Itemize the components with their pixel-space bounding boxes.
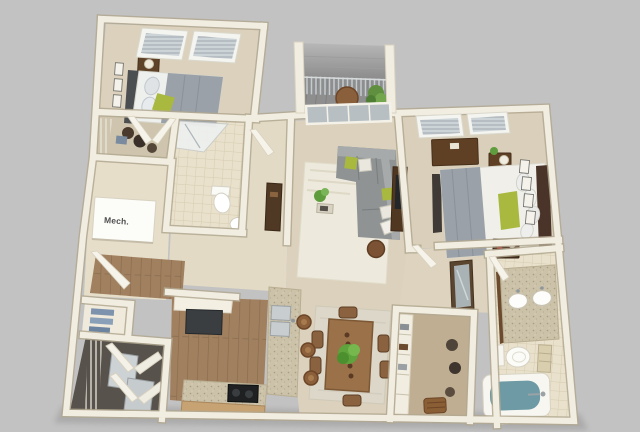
console-item: [270, 192, 278, 197]
basket: [424, 397, 447, 413]
hall-console-table: [265, 183, 282, 231]
candle: [345, 333, 350, 338]
hanging-clothes: [446, 339, 458, 351]
bed2-green-pillow: [498, 191, 520, 230]
refrigerator: [186, 309, 223, 334]
closet2-item: [399, 344, 408, 350]
sofa-green-pillow: [344, 156, 358, 170]
bedroom2-lamp: [500, 156, 509, 165]
bedroom-hall: [450, 260, 474, 312]
faucet: [540, 286, 544, 290]
mechanical-closet: Mech.: [92, 197, 156, 243]
floorplan-render: Mech.: [0, 0, 640, 432]
closet1-clothes: [147, 143, 157, 153]
book: [320, 206, 328, 212]
floorplan-svg: Mech.: [0, 0, 640, 432]
towel-rack: [537, 345, 551, 373]
bedroom2-window: [467, 112, 510, 135]
plant-leaves: [321, 188, 329, 196]
closet2-item: [398, 364, 407, 370]
sliding-glass-door: [306, 103, 391, 124]
mech-label: Mech.: [104, 215, 130, 227]
candle: [348, 364, 353, 369]
sofa-white-pillow: [358, 158, 371, 171]
breakfast-bar-counter: [267, 287, 301, 397]
bedroom1-window: [188, 31, 241, 63]
nightstand-plant: [490, 147, 498, 155]
bedroom1-lamp: [145, 60, 154, 69]
bed2-bench: [432, 174, 442, 233]
bedroom2-dresser: [432, 138, 479, 166]
balcony: [297, 43, 392, 112]
hallway: [265, 183, 282, 231]
range-cooktop: [228, 384, 259, 402]
hanging-clothes: [449, 362, 461, 374]
closet2-item: [400, 324, 409, 330]
side-table: [368, 241, 385, 258]
closet1-blue-item: [116, 135, 128, 144]
balcony-roof: [297, 43, 391, 78]
dresser-item: [450, 143, 459, 149]
bedroom1-window: [136, 28, 188, 60]
dining-area: [309, 306, 391, 406]
bedroom2-window: [416, 114, 464, 138]
laundry-wire-shelf: [85, 340, 102, 414]
hanging-clothes: [445, 387, 455, 397]
candle: [349, 374, 354, 379]
faucet: [516, 289, 520, 293]
balcony-post: [294, 42, 305, 113]
